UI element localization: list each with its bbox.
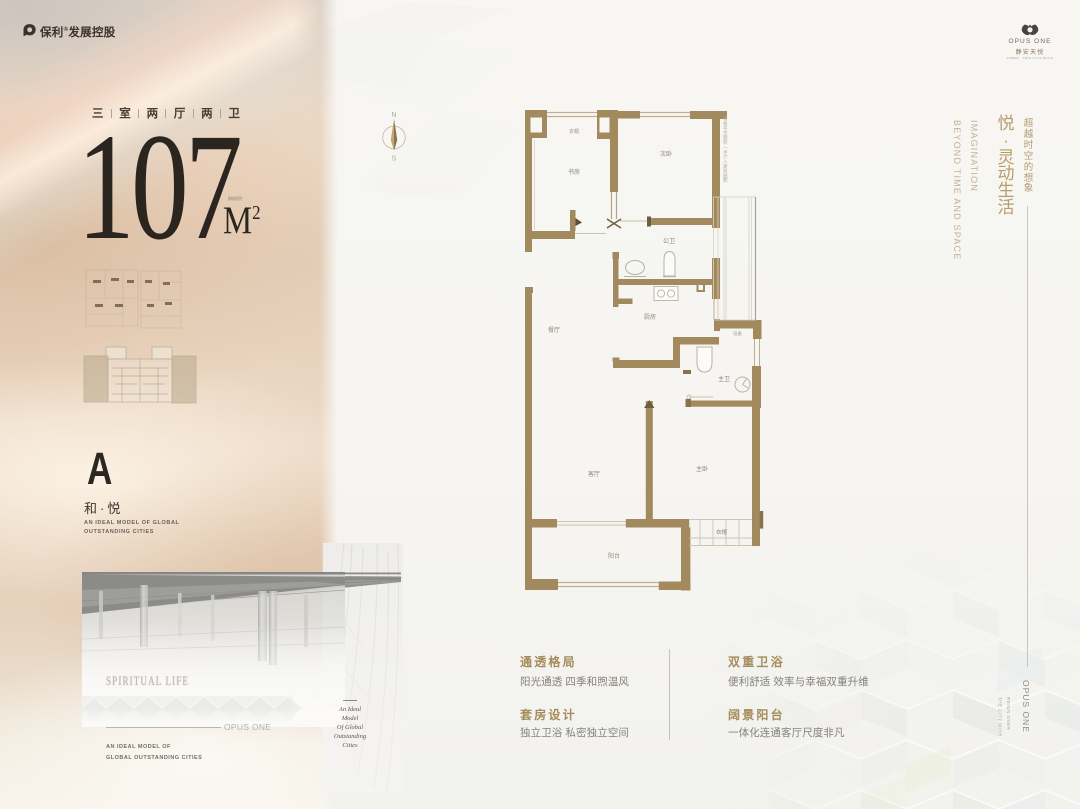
svg-text:设备: 设备 [733,330,742,337]
svg-text:主卫: 主卫 [718,375,730,383]
svg-text:次卧: 次卧 [660,150,672,158]
svg-text:主卧: 主卧 [696,465,708,473]
svg-text:S: S [392,156,397,163]
svg-text:厨房: 厨房 [644,313,656,321]
svg-text:餐厅: 餐厅 [548,326,560,334]
svg-text:衣帽: 衣帽 [716,528,728,536]
svg-text:衣帽: 衣帽 [569,128,579,135]
svg-text:公卫: 公卫 [663,238,675,245]
svg-text:N: N [391,112,396,119]
svg-text:阳台: 阳台 [608,552,620,560]
svg-text:客厅: 客厅 [588,470,600,478]
svg-text:书房: 书房 [568,168,580,176]
